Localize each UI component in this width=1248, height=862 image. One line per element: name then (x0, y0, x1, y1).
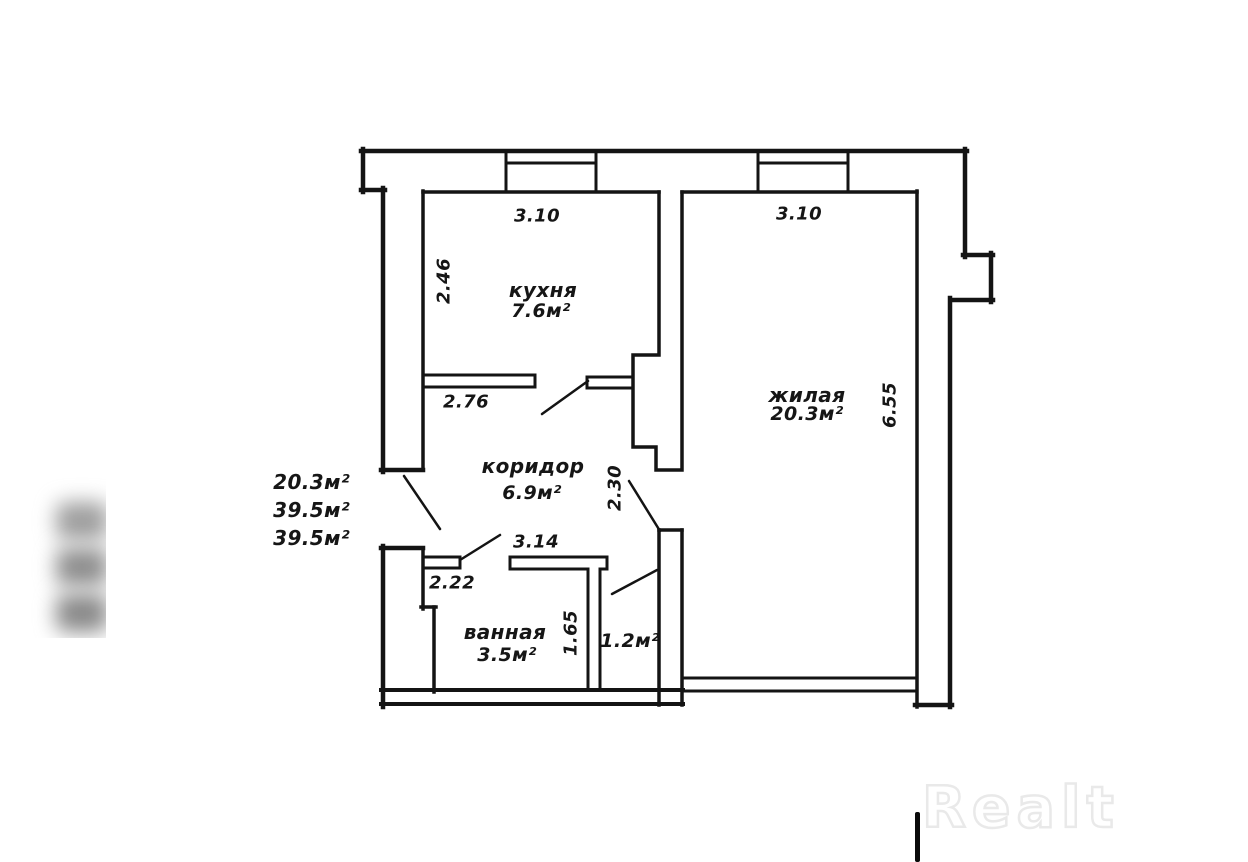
bottom-edge-mark (915, 812, 920, 862)
side-area-notes: 20.3м² 39.5м² 39.5м² (240, 468, 350, 552)
bottom-walls (381, 690, 683, 704)
label-corridor-area: 6.9м² (502, 482, 562, 504)
floorplan-drawing (0, 0, 1248, 862)
closet-door-swing (612, 570, 657, 594)
dim-kitchen-left: 2.46 (434, 258, 455, 304)
kitchen-door-swing (542, 381, 588, 414)
living-door-swing (629, 481, 660, 531)
label-bathroom-name: ванная (464, 620, 547, 644)
living-bottom-wall (683, 678, 917, 691)
label-kitchen-area: 7.6м² (511, 300, 571, 322)
label-kitchen-name: кухня (509, 278, 577, 302)
dim-living-top: 3.10 (776, 204, 822, 225)
side-note-line: 20.3м² (240, 468, 350, 496)
window-kitchen-icon (506, 151, 596, 192)
floorplan-page: 3.10 3.10 2.46 2.76 3.14 2.30 2.22 1.65 … (0, 0, 1248, 862)
label-bathroom-area: 3.5м² (477, 644, 537, 666)
divider-wall (633, 192, 682, 705)
entrance-door-swing (404, 476, 440, 529)
dim-living-right: 6.55 (880, 382, 901, 428)
side-note-line: 39.5м² (240, 524, 350, 552)
dim-kitchen-top: 3.10 (514, 206, 560, 227)
window-living-icon (758, 151, 848, 192)
label-living-area: 20.3м² (770, 403, 843, 425)
label-closet-area: 1.2м² (600, 630, 660, 652)
side-note-line: 39.5м² (240, 496, 350, 524)
bathroom-door-swing (460, 535, 500, 560)
realt-watermark-logo: Realt (922, 780, 1120, 837)
dim-bath-height: 1.65 (561, 610, 582, 656)
dim-corridor-bottom: 3.14 (513, 532, 559, 553)
dim-living-door: 2.30 (605, 465, 626, 511)
label-corridor-name: коридор (482, 454, 585, 478)
dim-bath-top: 2.22 (429, 573, 475, 594)
dim-kitchen-bottom: 2.76 (443, 392, 489, 413)
